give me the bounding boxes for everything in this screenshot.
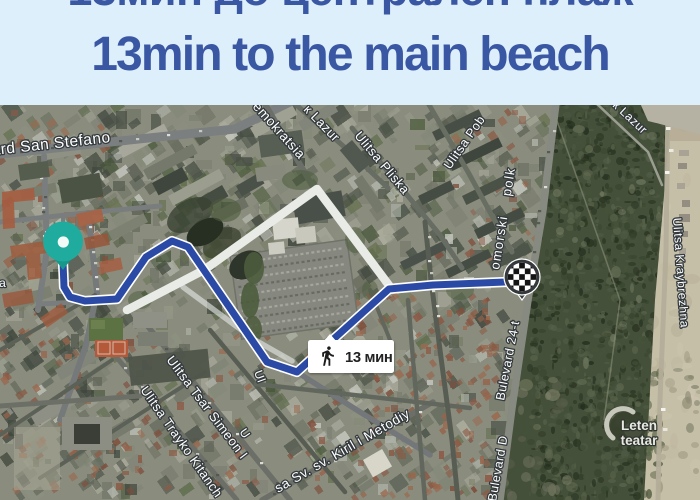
svg-text:Leten: Leten (621, 418, 657, 433)
svg-text:teatar: teatar (621, 433, 659, 448)
svg-text:13 мин: 13 мин (345, 350, 392, 366)
svg-text:ia: ia (0, 276, 6, 290)
